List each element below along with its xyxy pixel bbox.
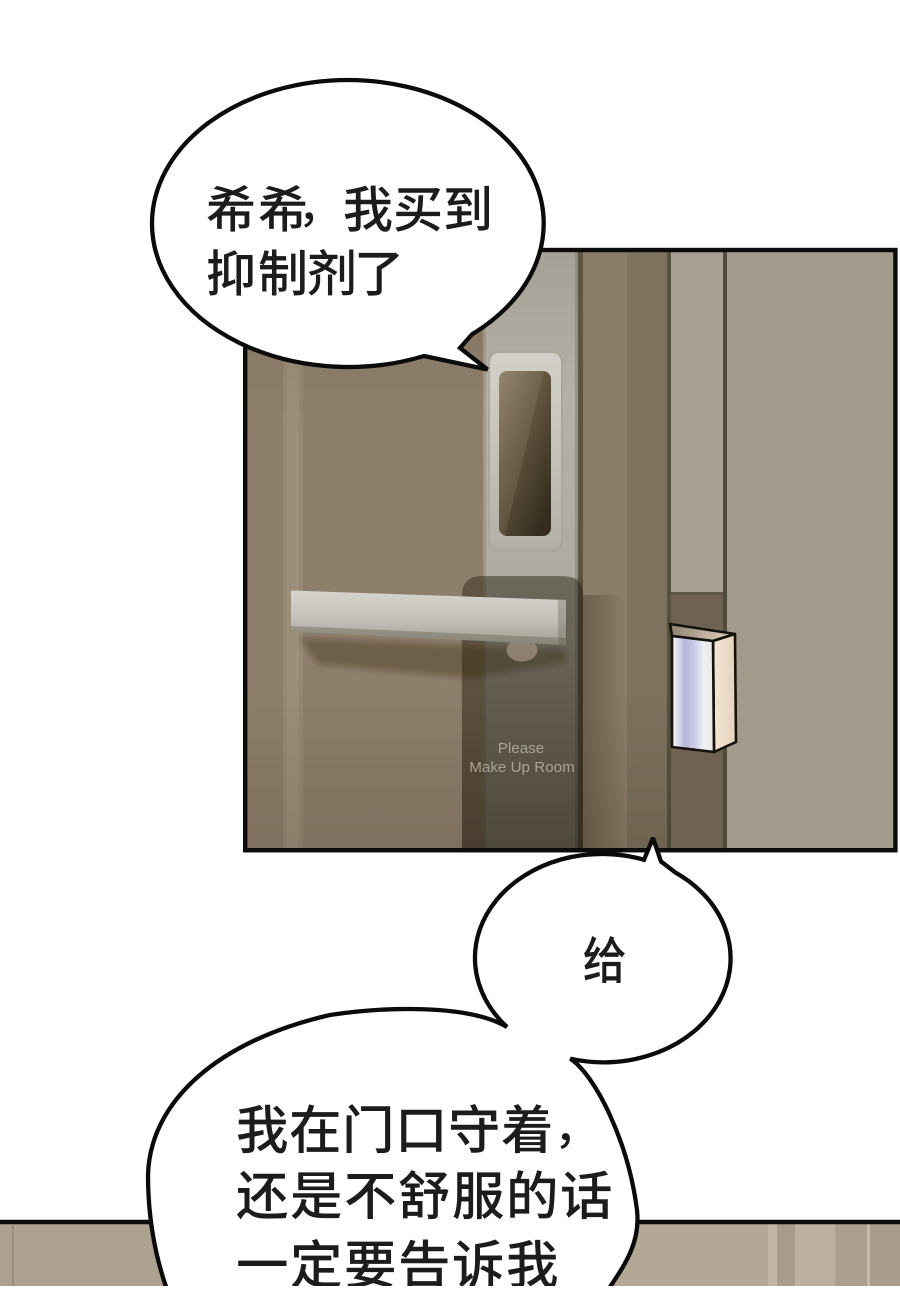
svg-text:Make Up Room: Make Up Room	[469, 759, 575, 776]
svg-text:Please: Please	[498, 740, 544, 757]
